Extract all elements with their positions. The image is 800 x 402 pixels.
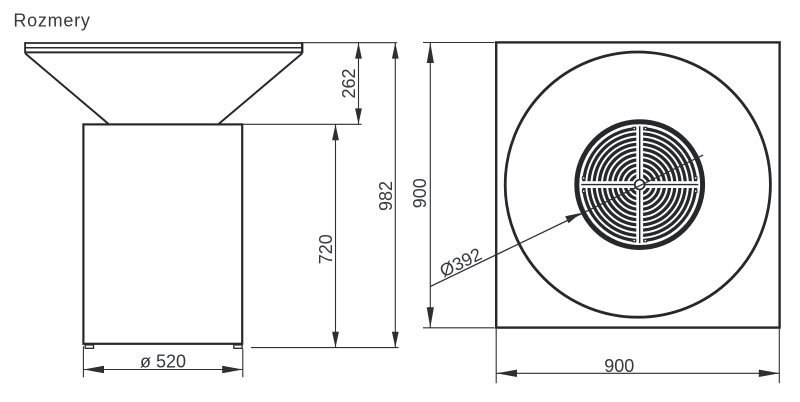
svg-text:Ø392: Ø392: [437, 244, 485, 281]
svg-text:982: 982: [376, 181, 396, 211]
svg-text:900: 900: [410, 178, 430, 208]
svg-text:262: 262: [339, 68, 359, 98]
svg-text:900: 900: [604, 356, 634, 376]
svg-text:720: 720: [316, 234, 336, 264]
svg-text:Rozmery: Rozmery: [13, 11, 90, 31]
svg-text:ø 520: ø 520: [140, 351, 186, 371]
